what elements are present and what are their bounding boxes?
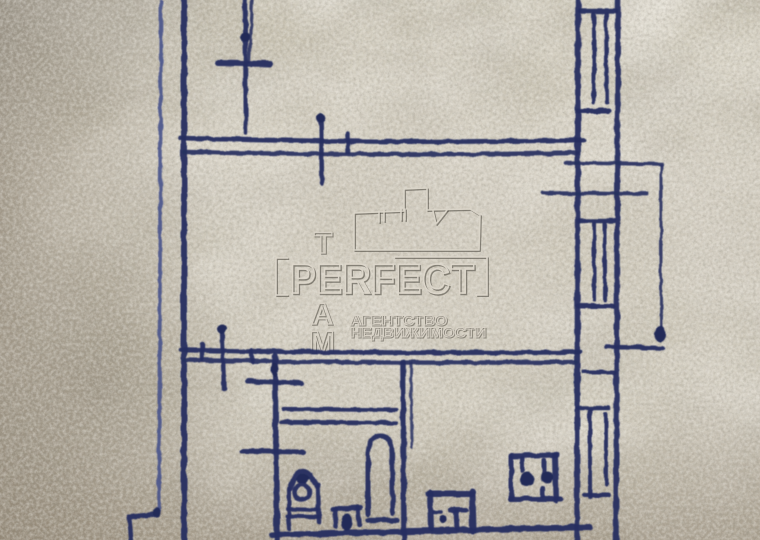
svg-text:НЕДВИЖИМОСТИ: НЕДВИЖИМОСТИ	[350, 324, 486, 340]
svg-text:PERFECT: PERFECT	[290, 255, 475, 302]
